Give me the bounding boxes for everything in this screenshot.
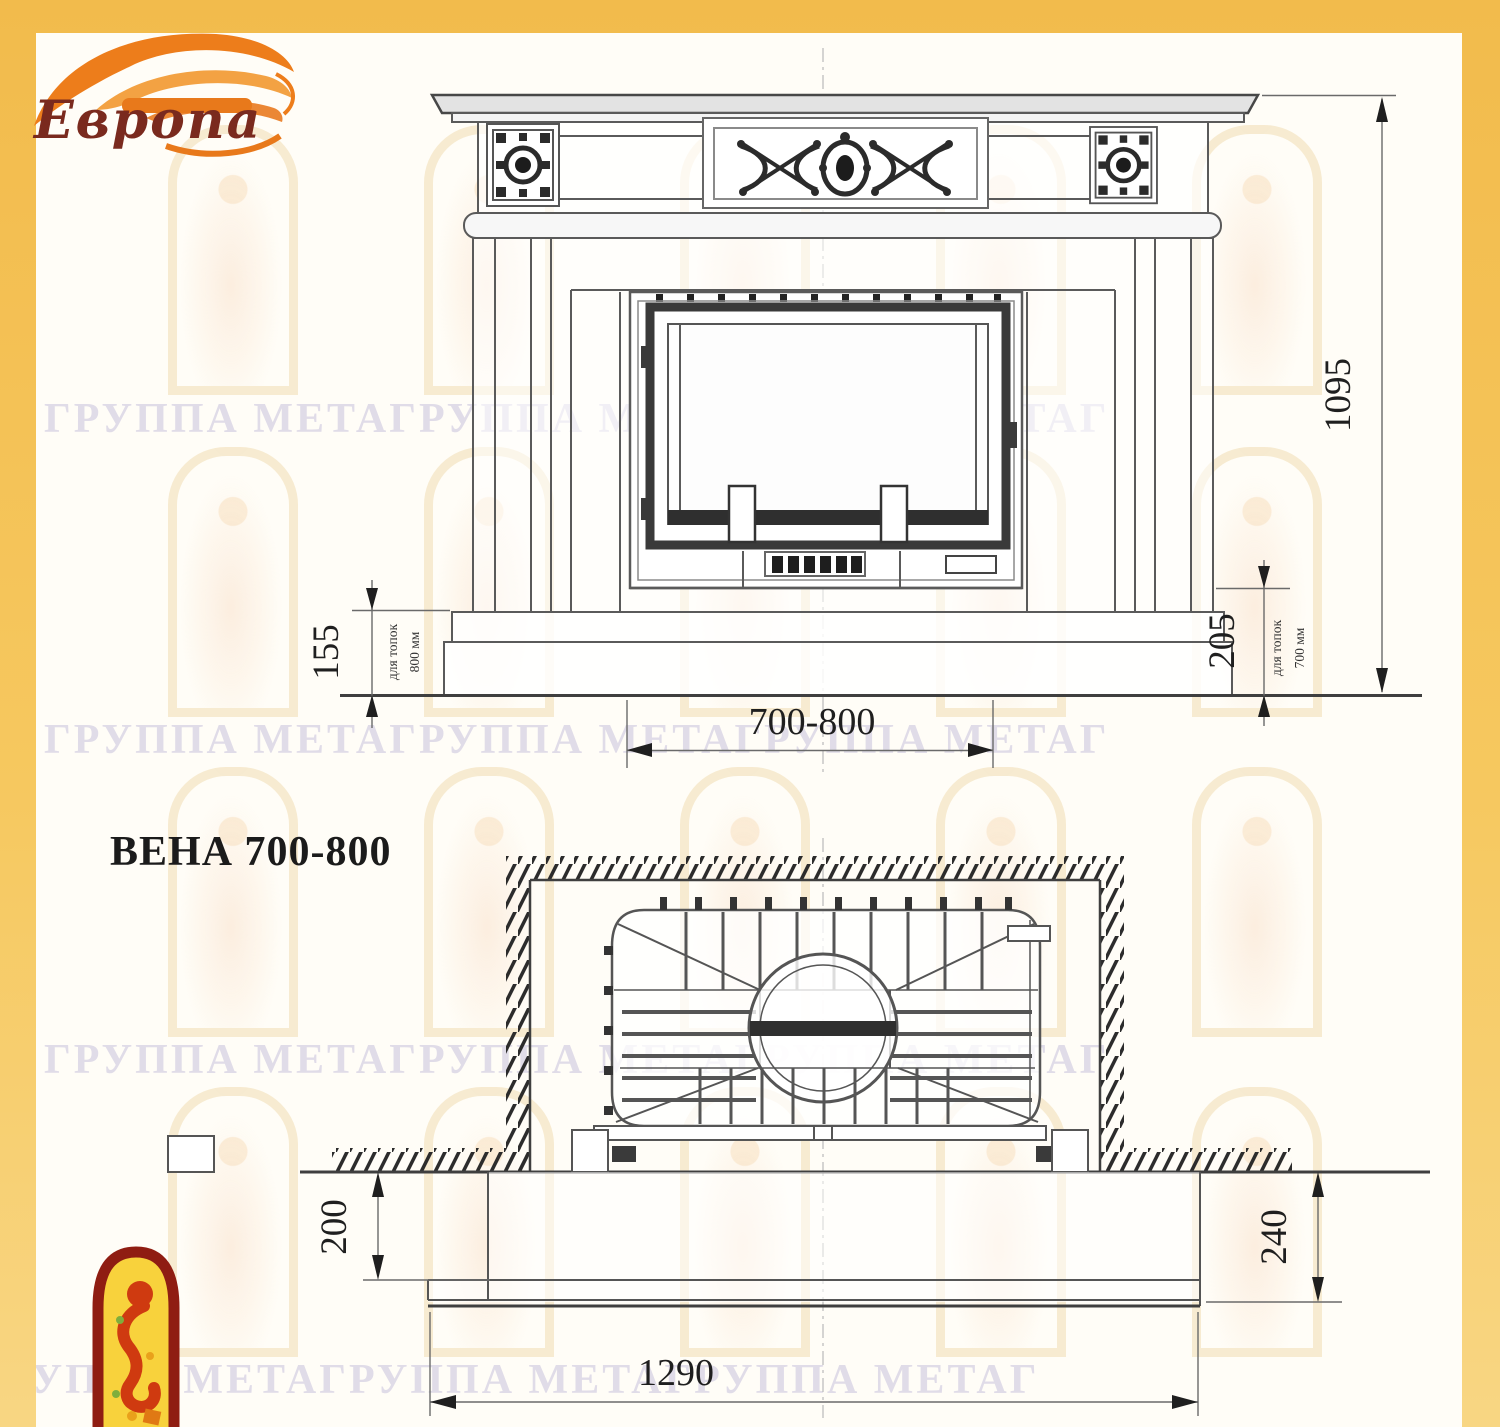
rosette-right-icon bbox=[1090, 127, 1157, 203]
brand-logo: Европа bbox=[26, 14, 306, 164]
plan-view bbox=[168, 856, 1430, 1306]
technical-drawing: 1095 155 для топок 800 мм 205 для топок … bbox=[0, 0, 1500, 1427]
dim-plinth-left-note2: 800 мм bbox=[407, 631, 422, 672]
logo-text: Европа bbox=[32, 90, 262, 151]
dim-plinth-right-note1: для топок bbox=[1269, 619, 1284, 676]
dim-plinth-left-note1: для топок bbox=[385, 623, 400, 680]
page: ГРУППА МЕТАГРУППА МЕТАГРУППА МЕТАГ ГРУПП… bbox=[0, 0, 1500, 1427]
dim-plinth-right: 205 bbox=[1202, 613, 1243, 669]
firebox-insert bbox=[630, 292, 1022, 588]
dim-plinth-left: 155 bbox=[306, 624, 347, 680]
dim-firebox-width: 700-800 bbox=[749, 701, 876, 743]
front-view bbox=[340, 95, 1422, 696]
dim-total-height: 1095 bbox=[1318, 358, 1359, 432]
dim-hearth-right: 240 bbox=[1254, 1209, 1295, 1265]
dim-hearth-width: 1290 bbox=[638, 1352, 714, 1394]
rosette-left-icon bbox=[487, 124, 559, 206]
dim-hearth-left: 200 bbox=[314, 1199, 355, 1255]
frieze-ornament bbox=[703, 118, 988, 208]
dim-plinth-right-note2: 700 мм bbox=[1292, 627, 1307, 668]
